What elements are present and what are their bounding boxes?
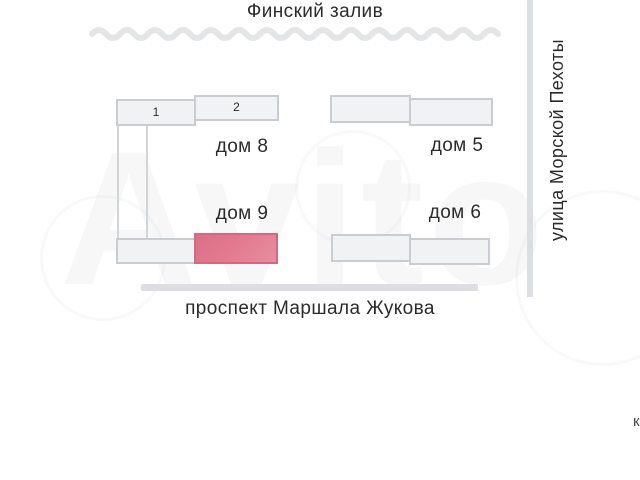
building-dom9-label: дом 9 — [182, 203, 302, 225]
street-right-label: улица Морской Пехоты — [547, 20, 567, 260]
building-wing-outline — [117, 124, 148, 240]
building-dom6-label: дом 6 — [395, 202, 515, 224]
avenue-road — [141, 284, 478, 291]
water-label: Финский залив — [95, 1, 535, 23]
building-dom9-highlighted — [194, 233, 278, 264]
building-dom5-section-right — [409, 98, 493, 126]
building-dom8-section-2: 2 — [194, 95, 279, 121]
building-dom5-label: дом 5 — [397, 135, 517, 157]
avenue-label: проспект Маршала Жукова — [150, 298, 470, 320]
building-dom8-label: дом 8 — [182, 136, 302, 158]
building-dom6-section-right — [409, 238, 490, 265]
building-dom6-section-left — [331, 234, 411, 262]
building-dom8-section-1: 1 — [116, 99, 196, 126]
section-1-number: 1 — [118, 105, 194, 119]
building-dom5-section-left — [330, 95, 411, 123]
section-2-number: 2 — [196, 100, 277, 114]
site-plan-map: Avito Финский залив улица Морской Пехоты… — [0, 0, 640, 480]
street-vertical-road — [527, 0, 533, 297]
watermark-ring — [295, 130, 411, 246]
edge-clipped-char: к — [633, 413, 640, 430]
shoreline-wave-icon — [85, 22, 510, 44]
building-dom9-section-gray — [116, 238, 196, 264]
